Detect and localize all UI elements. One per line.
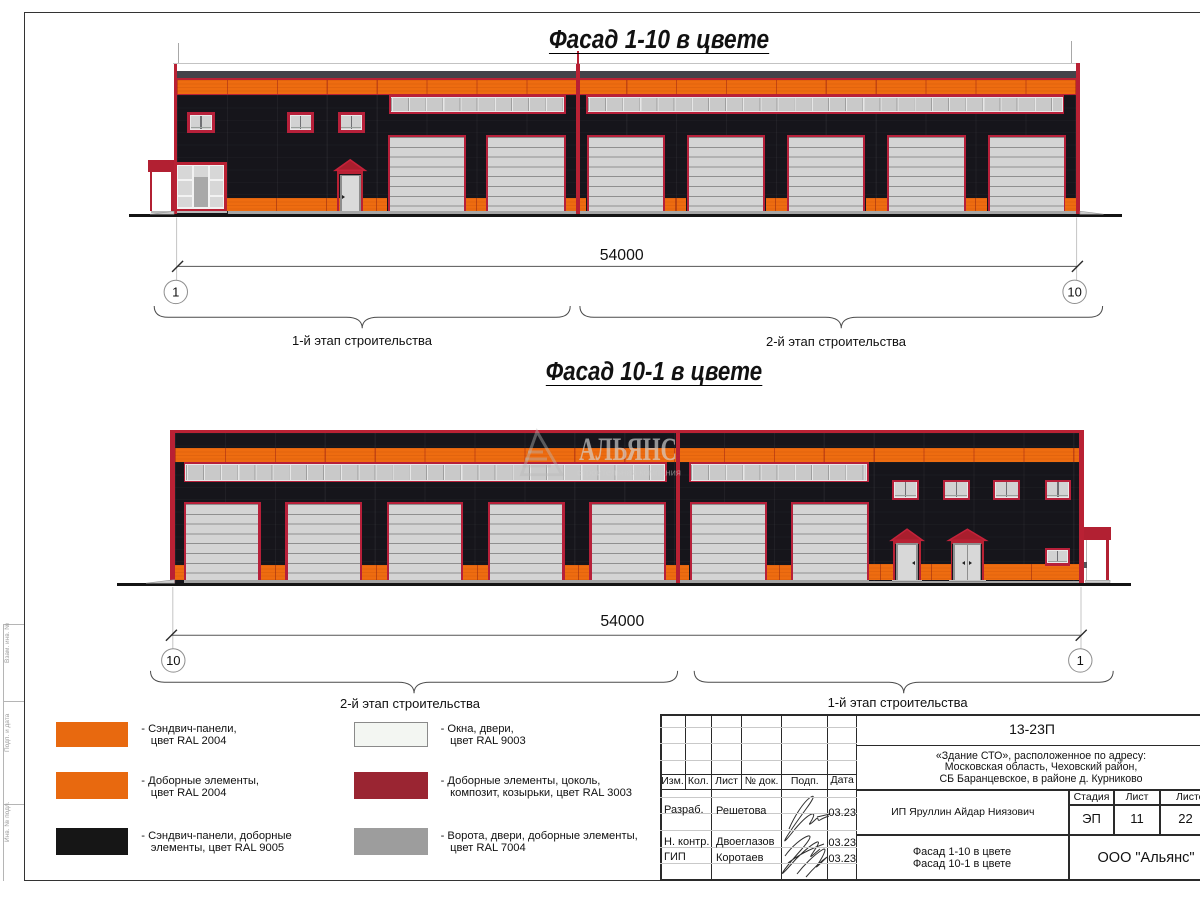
svg-text:1-й этап строительства: 1-й этап строительства xyxy=(292,333,433,348)
svg-text:2-й этап строительства: 2-й этап строительства xyxy=(340,696,481,711)
svg-text:54000: 54000 xyxy=(600,247,644,264)
svg-text:1: 1 xyxy=(1077,653,1084,668)
svg-text:строительная компания: строительная компания xyxy=(577,468,681,479)
svg-text:10: 10 xyxy=(166,653,180,668)
svg-text:АЛЬЯНС: АЛЬЯНС xyxy=(579,432,677,468)
svg-text:1: 1 xyxy=(172,285,179,300)
svg-text:54000: 54000 xyxy=(600,613,644,630)
svg-text:10: 10 xyxy=(1067,285,1081,300)
svg-text:2-й этап строительства: 2-й этап строительства xyxy=(766,334,907,349)
svg-text:1-й этап строительства: 1-й этап строительства xyxy=(828,695,969,710)
